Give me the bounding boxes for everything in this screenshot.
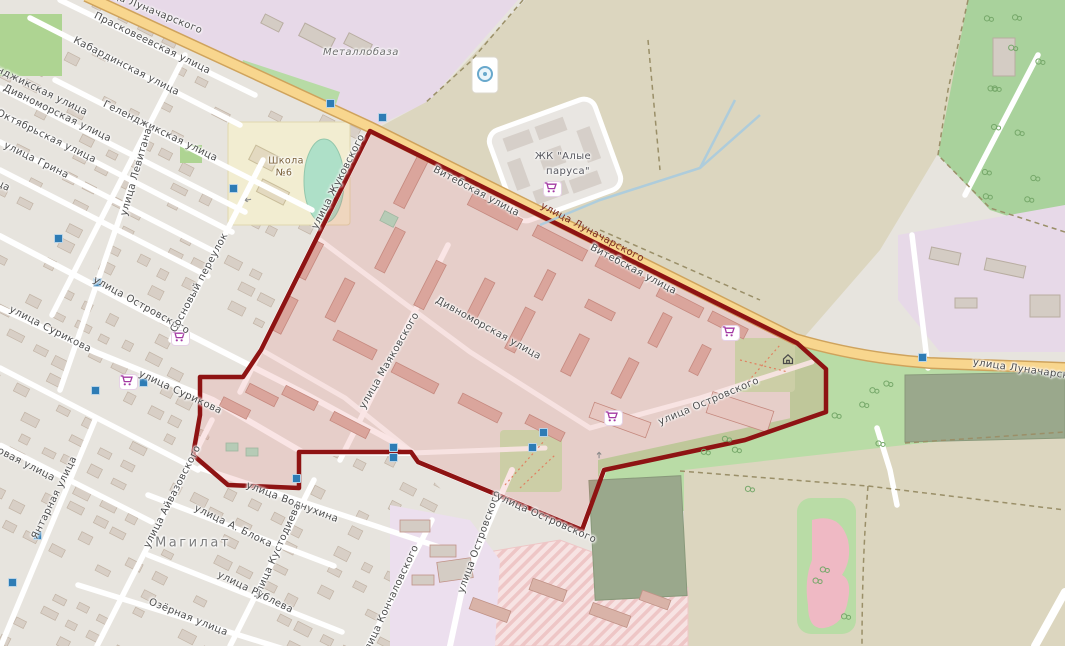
sports-field-bottom bbox=[589, 476, 687, 601]
map-canvas[interactable]: ➔➔ улица ЛуначарскогоПрасковеевская улиц… bbox=[0, 0, 1065, 646]
map-base-layer bbox=[0, 0, 1065, 646]
pink-scrub bbox=[807, 518, 849, 628]
park-top-left bbox=[0, 14, 62, 76]
forest-building bbox=[993, 38, 1015, 76]
sports-field-right bbox=[905, 372, 1065, 442]
